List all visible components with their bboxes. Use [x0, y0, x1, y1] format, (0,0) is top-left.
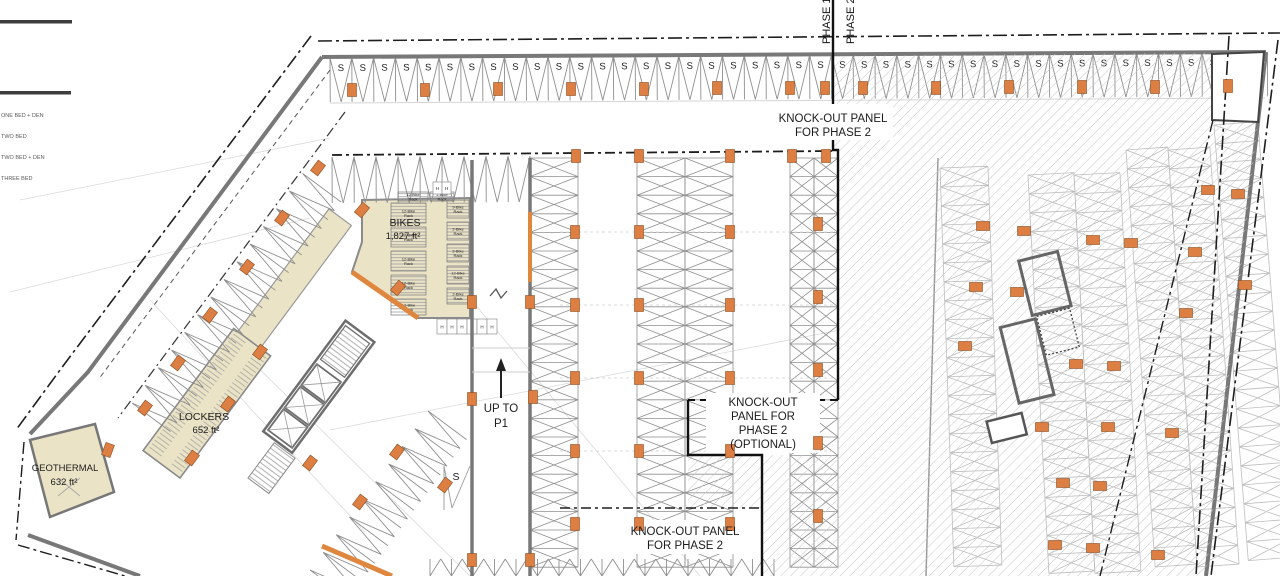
column-marker: [726, 299, 735, 312]
stall-size-label: S: [425, 62, 431, 73]
lockers-room-label: LOCKERS: [179, 411, 229, 423]
column-marker: [1078, 81, 1087, 94]
column-marker: [571, 372, 580, 385]
column-marker: [1125, 239, 1138, 248]
bikes-room-area: 1,827 ft²: [386, 231, 421, 242]
column-marker: [1108, 362, 1121, 371]
legend-item-two-bed: TWO BED: [1, 134, 27, 140]
stall-size-label: S: [774, 60, 780, 71]
column-marker: [932, 82, 941, 95]
legend-item-one-bed-den: ONE BED + DEN: [1, 113, 44, 119]
ramp-label-line1: UP TO: [484, 403, 519, 415]
corridor: [234, 209, 352, 354]
knockout-bottom-line1: KNOCK-OUT PANEL: [631, 526, 740, 538]
stall-size-label: S: [687, 61, 693, 72]
column-marker: [1049, 541, 1062, 550]
lockers-room: [143, 329, 271, 478]
bike-rack: 12-BikeRack: [391, 251, 426, 271]
phase2-label: PHASE 2: [845, 0, 857, 44]
column-marker: [348, 84, 357, 97]
phase1-label: PHASE 1: [821, 0, 833, 44]
stall-lines: [530, 158, 578, 567]
column-marker: [526, 554, 535, 567]
bike-rack: 9-BikeRack: [447, 200, 469, 218]
h-cell-label: H: [440, 324, 443, 329]
column-marker: [959, 342, 972, 351]
column-marker: [1087, 544, 1100, 553]
column-marker: [102, 442, 115, 457]
bike-rack: 12-BikeRack: [398, 192, 428, 202]
knockout-mid-line2: PANEL FOR: [731, 411, 795, 423]
column-marker: [1232, 190, 1245, 199]
knockout-top-line2: FOR PHASE 2: [795, 127, 871, 139]
column-marker: [1151, 81, 1160, 94]
unit-legend: ONE BED + DEN TWO BED TWO BED + DEN THRE…: [0, 20, 72, 182]
bikes-room-label: BIKES: [390, 217, 421, 229]
column-marker: [814, 291, 823, 304]
stall-size-label: S: [578, 61, 584, 72]
column-marker: [1202, 186, 1215, 195]
h-cell-strip: HHHHHH: [437, 319, 497, 334]
bike-rack: 12-BikeRack: [447, 266, 469, 284]
stall-size-label: S: [817, 60, 823, 71]
column-marker: [352, 494, 367, 510]
column-marker: [859, 82, 868, 95]
column-marker: [821, 82, 830, 95]
floor-plan-drawing: SSSSSSSSSSSSSSSSSSSSSSSSSSSSSSSSSSSSSSSS…: [0, 0, 1280, 576]
legend-bar-1: [0, 20, 72, 24]
knockout-mid-line3: PHASE 2: [739, 425, 788, 437]
column-marker: [571, 518, 580, 531]
knockout-top-line1: KNOCK-OUT PANEL: [779, 113, 888, 125]
stall-size-label: S: [534, 62, 540, 73]
stall-size-label: S: [403, 63, 409, 74]
column-marker: [468, 393, 477, 406]
column-marker: [137, 400, 152, 416]
column-marker: [1166, 429, 1179, 438]
h-cell-label: H: [460, 324, 463, 329]
column-marker: [977, 222, 990, 231]
stall-size-label: S: [512, 62, 518, 73]
column-marker: [1152, 551, 1165, 560]
h-cell-label: H: [436, 186, 439, 191]
ramp-up-arrow: [496, 358, 506, 398]
column-marker: [822, 150, 831, 163]
column-marker: [814, 437, 823, 450]
bike-rack-label: Rack: [404, 261, 413, 266]
bike-rack: 2-BikeRack: [447, 288, 469, 304]
corner-knockout-room: [1212, 52, 1264, 122]
column-marker: [635, 226, 644, 239]
knockout-mid-line1: KNOCK-OUT: [729, 397, 798, 409]
stall-size-label: S: [469, 62, 475, 73]
column-marker: [814, 364, 823, 377]
column-marker: [726, 226, 735, 239]
column-marker: [970, 283, 983, 292]
stall-size-label: S: [665, 61, 671, 72]
column-marker: [302, 455, 317, 471]
stall-size-label: S: [360, 63, 366, 74]
stall-size-label: S: [796, 60, 802, 71]
stall-size-label: S: [490, 62, 496, 73]
column-marker: [567, 83, 576, 96]
column-marker: [529, 391, 538, 404]
stall-size-label: S: [752, 60, 758, 71]
column-marker: [571, 226, 580, 239]
bike-rack-label: Rack: [453, 275, 462, 280]
column-marker: [468, 554, 477, 567]
stall-size-label: S: [338, 63, 344, 74]
bike-rack-label: Rack: [453, 231, 462, 236]
legend-bar-2: [0, 91, 71, 95]
column-marker: [1057, 479, 1070, 488]
column-marker: [468, 296, 477, 309]
column-marker: [635, 372, 644, 385]
h-cell-label: H: [480, 324, 483, 329]
column-marker: [1005, 81, 1014, 94]
column-marker: [814, 510, 823, 523]
bike-rack-label: Rack: [453, 253, 462, 258]
stall-size-label: S: [381, 63, 387, 74]
small-stall-label: S: [452, 471, 459, 483]
h-cell-strip: HH: [433, 182, 451, 194]
column-marker: [788, 150, 797, 163]
stall-size-label: S: [556, 62, 562, 73]
column-marker: [421, 84, 430, 97]
column-marker: [1018, 227, 1031, 236]
bike-rack: 2-BikeRack: [447, 222, 469, 240]
column-marker: [170, 355, 185, 371]
stall-size-label: S: [599, 61, 605, 72]
lockers-room-area: 652 ft²: [193, 425, 220, 436]
column-marker: [494, 83, 503, 96]
bike-rack-label: Rack: [437, 197, 446, 202]
column-marker: [1180, 309, 1193, 318]
column-marker: [1189, 248, 1202, 257]
column-marker: [571, 299, 580, 312]
parking-stall-column: [530, 158, 578, 567]
knockout-mid-line4: (OPTIONAL): [730, 439, 796, 451]
legend-item-three-bed: THREE BED: [1, 176, 33, 182]
parking-stall-column: [637, 158, 685, 567]
bike-rack-label: Rack: [453, 296, 462, 301]
column-marker: [1036, 423, 1049, 432]
column-marker: [1102, 423, 1115, 432]
stall-size-label: S: [447, 62, 453, 73]
elevator-core: [263, 321, 374, 453]
ramp-label-line2: P1: [494, 418, 508, 430]
column-marker: [726, 372, 735, 385]
stall-lines: [637, 158, 685, 567]
h-cell-label: H: [445, 186, 448, 191]
column-marker: [635, 150, 644, 163]
column-marker: [1239, 281, 1252, 290]
column-marker: [635, 445, 644, 458]
h-cell-label: H: [450, 324, 453, 329]
column-marker: [1070, 360, 1083, 369]
bike-rack-label: Rack: [408, 197, 417, 202]
wall-break-symbol: [490, 289, 507, 298]
column-marker: [437, 477, 452, 493]
column-marker: [1011, 288, 1024, 297]
stall-size-label: S: [730, 61, 736, 72]
bike-rack-label: Rack: [453, 209, 462, 214]
column-marker: [1087, 236, 1100, 245]
stall-size-label: S: [621, 61, 627, 72]
knockout-bottom-line2: FOR PHASE 2: [647, 540, 723, 552]
geothermal-room-label: GEOTHERMAL: [32, 463, 99, 474]
stall-size-label: S: [708, 61, 714, 72]
column-marker: [572, 150, 581, 163]
column-marker: [1224, 80, 1233, 93]
bike-rack: 2-BikeRack: [447, 244, 469, 262]
column-marker: [1094, 482, 1107, 491]
column-marker: [814, 218, 823, 231]
column-marker: [726, 150, 735, 163]
geothermal-room-area: 632 ft²: [51, 477, 78, 488]
column-marker: [526, 296, 535, 309]
column-marker: [713, 82, 722, 95]
stall-size-label: S: [643, 61, 649, 72]
column-marker: [786, 82, 795, 95]
column-marker: [640, 83, 649, 96]
column-marker: [571, 445, 580, 458]
column-marker: [635, 299, 644, 312]
column-marker: [310, 160, 325, 176]
legend-item-two-bed-den: TWO BED + DEN: [1, 155, 45, 161]
floor-plan-sheet: SSSSSSSSSSSSSSSSSSSSSSSSSSSSSSSSSSSSSSSS…: [0, 0, 1280, 576]
h-cell-label: H: [490, 324, 493, 329]
